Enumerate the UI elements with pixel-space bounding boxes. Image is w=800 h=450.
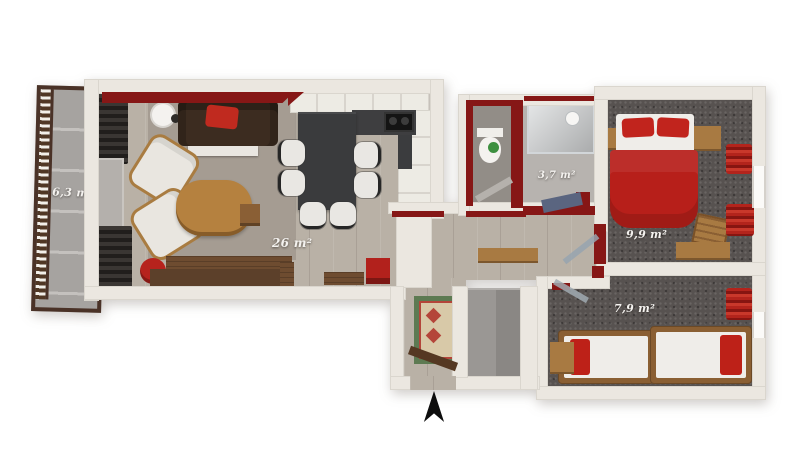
hallway-floor xyxy=(430,210,600,280)
side-table xyxy=(240,204,260,226)
dining-chair-6 xyxy=(330,202,356,229)
wall-entrance-left xyxy=(390,286,404,390)
window-bedroom-main xyxy=(752,166,766,208)
wall-living-bottom xyxy=(84,286,406,300)
red-wall-bedroom-main-door xyxy=(594,224,606,264)
single-bed-right-pillow xyxy=(720,335,742,375)
floor-plan: 6,3 m² xyxy=(0,0,800,450)
window-bedroom-second xyxy=(752,312,766,338)
dining-table xyxy=(298,112,356,210)
red-wall-divider-patch xyxy=(592,266,604,278)
hall-bench xyxy=(324,272,364,285)
shower-head xyxy=(566,112,579,125)
bedroom-second-dresser xyxy=(550,342,574,374)
curtain-main-bottom xyxy=(726,204,754,236)
single-bed-right xyxy=(650,326,752,384)
wall-kitchen-right xyxy=(430,79,444,219)
dining-chair-1 xyxy=(278,140,305,166)
entrance-door-opening xyxy=(410,376,456,390)
sofa-red-pillow xyxy=(205,104,239,129)
red-wall-living-top xyxy=(102,92,294,103)
sofa-console xyxy=(188,146,258,156)
double-bed-duvet xyxy=(610,150,698,228)
shower-enclosure xyxy=(527,104,595,154)
red-wall-wc-top xyxy=(466,100,516,106)
red-wall-corridor-2 xyxy=(466,211,526,217)
wall-utility-block xyxy=(396,210,432,288)
bedroom-main-area-label: 9,9 m² xyxy=(626,228,667,241)
wall-bedrooms-divider xyxy=(596,262,766,276)
curtain-second xyxy=(726,288,752,320)
double-bed-pillow-right xyxy=(657,117,690,138)
wall-wardrobe-right-stub xyxy=(520,286,538,390)
nightstand-right xyxy=(694,126,721,151)
hall-red-stool xyxy=(366,258,390,284)
red-wall-wc-left xyxy=(466,104,473,206)
wardrobe xyxy=(466,288,524,376)
hall-wood-box xyxy=(280,262,294,286)
double-bed-pillow-left xyxy=(622,117,655,138)
balcony-railing xyxy=(35,89,53,299)
dining-chair-3 xyxy=(354,142,381,168)
toilet-tank xyxy=(477,128,503,137)
wall-bedroom-main-top xyxy=(594,86,766,100)
dining-chair-2 xyxy=(278,170,305,196)
stove-burner-2 xyxy=(401,117,409,125)
wall-living-top xyxy=(84,79,444,94)
wall-bedroom-second-bottom xyxy=(536,386,766,400)
balcony-door-panel xyxy=(96,158,124,228)
red-wall-bath-top xyxy=(524,96,594,101)
bedroom-desk xyxy=(676,242,730,260)
curtain-main-top xyxy=(726,144,752,174)
bathroom-area-label: 3,7 m² xyxy=(538,170,576,181)
wall-right-outer xyxy=(752,86,766,400)
sideboard-lower xyxy=(150,269,290,286)
toilet-lid-green xyxy=(488,142,499,153)
stove-burner-1 xyxy=(389,117,397,125)
hallway-bench xyxy=(478,248,538,263)
dining-chair-4 xyxy=(354,172,381,198)
red-wall-wc-bath-divider xyxy=(511,100,523,208)
kitchen-appliance-front xyxy=(398,135,412,169)
bedroom-second-area-label: 7,9 m² xyxy=(614,302,655,315)
wall-bedroom-main-left xyxy=(594,86,608,232)
wall-living-left xyxy=(84,79,99,301)
dining-chair-5 xyxy=(300,202,326,229)
floor-plan-canvas: 6,3 m² xyxy=(0,0,800,450)
red-wall-corridor-1 xyxy=(392,211,444,217)
floor-lamp xyxy=(152,104,174,126)
living-area-label: 26 m² xyxy=(272,236,312,250)
